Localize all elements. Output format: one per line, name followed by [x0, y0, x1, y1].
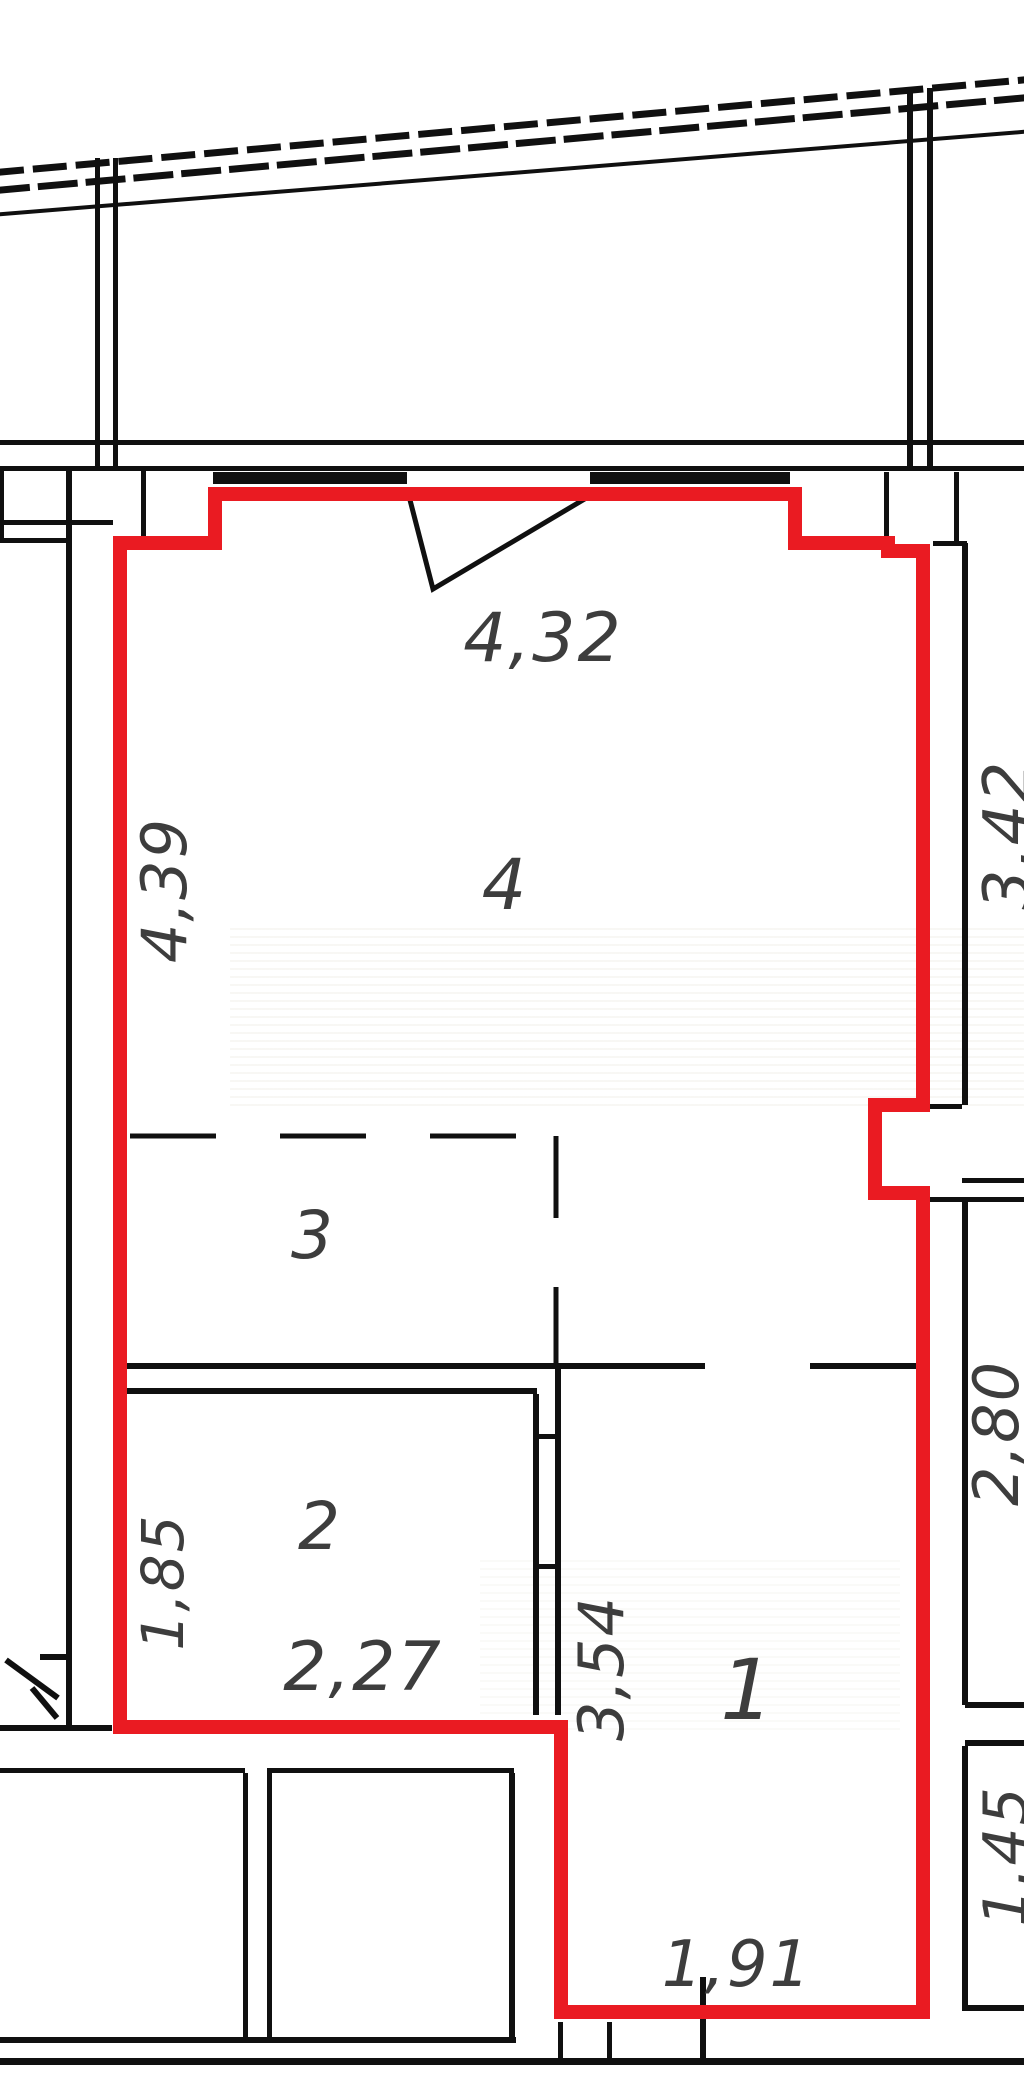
dimension-room2-height: 1,85 — [134, 1513, 192, 1650]
dimension-bottom: 1,91 — [662, 1933, 813, 1997]
dimension-right-lower: 1,45 — [976, 1785, 1024, 1927]
dimension-room2-width: 2,27 — [283, 1634, 442, 1702]
plan-linework — [0, 0, 1024, 2074]
room-label-2: 2 — [298, 1494, 342, 1560]
dimension-right-middle: 2,80 — [966, 1360, 1024, 1506]
dimension-left-wall: 4,39 — [134, 817, 196, 963]
wall-break-mark — [6, 1657, 70, 1718]
room-label-1: 1 — [720, 1648, 775, 1732]
room-label-4: 4 — [482, 850, 529, 920]
dashed-boundary — [130, 1136, 556, 1392]
roof-edge-lines — [0, 79, 1024, 215]
red-unit-boundary — [120, 494, 923, 2012]
dimension-right-upper: 3,42 — [976, 760, 1024, 911]
room-label-3: 3 — [291, 1203, 335, 1269]
floor-plan: 4 3 2 1 4,32 3,42 2,80 1,45 1,91 3,54 2,… — [0, 0, 1024, 2074]
door-swing — [410, 497, 588, 589]
dimension-middle-wall: 3,54 — [571, 1595, 633, 1741]
dimension-top: 4,32 — [463, 605, 622, 673]
